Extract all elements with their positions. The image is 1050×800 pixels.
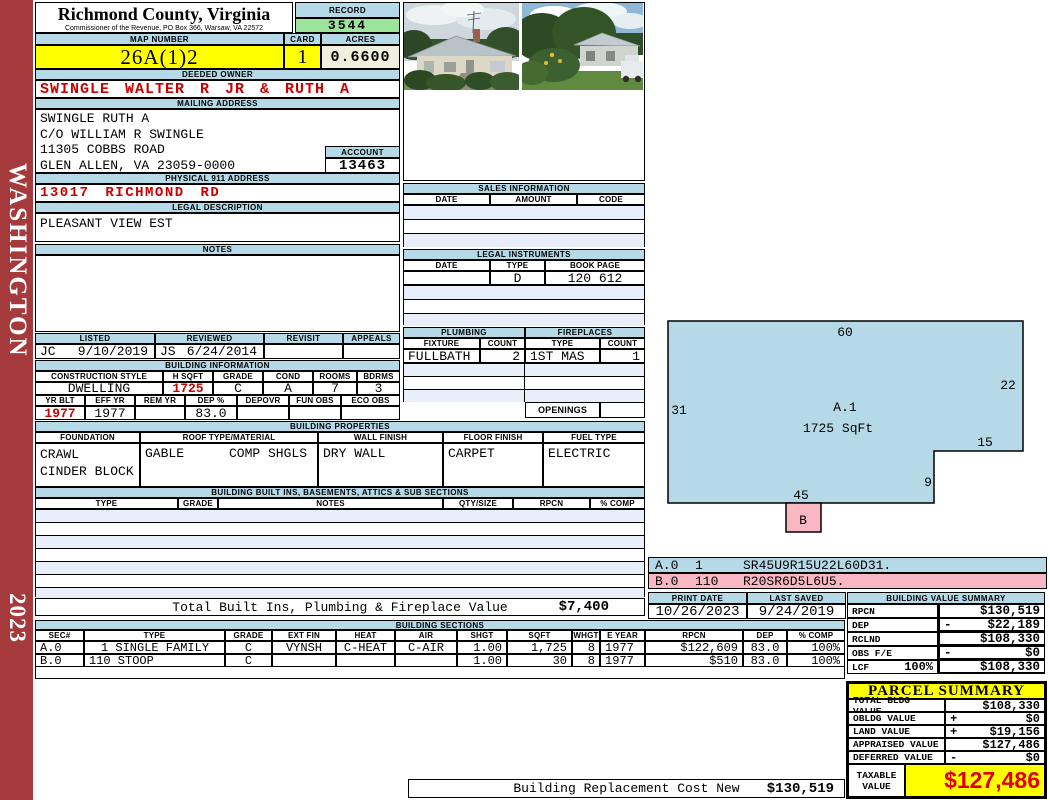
col-funobs: FUN OBS <box>289 395 341 406</box>
col-fuel-type: FUEL TYPE <box>543 432 645 443</box>
plumbing-title: PLUMBING <box>403 327 525 338</box>
col-extfin: EXT FIN <box>272 630 336 641</box>
sketch-b-label: B <box>799 513 807 528</box>
col-bi-grade: GRADE <box>178 498 218 509</box>
section-row-cell: A.0 <box>35 641 84 654</box>
replacement-cost-label: Building Replacement Cost New <box>513 781 739 796</box>
section-row-cell: $122,609 <box>645 641 743 654</box>
sales-information-title: SALES INFORMATION <box>403 183 645 194</box>
bvs-label: OBS F/E <box>852 648 892 659</box>
reviewed-label: REVIEWED <box>155 333 264 344</box>
col-floor-finish: FLOOR FINISH <box>443 432 543 443</box>
col-heat: HEAT <box>336 630 395 641</box>
listed-by: JC <box>40 344 56 359</box>
section-row-cell: VYNSH <box>272 641 336 654</box>
deeded-owner-value: SWINGLE WALTER R JR & RUTH A <box>35 80 400 98</box>
physical-address-value: 13017 RICHMOND RD <box>35 184 400 202</box>
revisit-label: REVISIT <box>264 333 343 344</box>
empty-row <box>36 549 644 562</box>
property-record-card: WASHINGTON 2023 Richmond County, Virgini… <box>0 0 1050 800</box>
wall-finish-value: DRY WALL <box>318 443 443 487</box>
col-inst-type: TYPE <box>490 260 545 271</box>
remyr-value <box>135 406 185 420</box>
legal-description-label: LEGAL DESCRIPTION <box>35 202 400 213</box>
col-bi-qty: QTY/SIZE <box>443 498 513 509</box>
sections-table-footer <box>35 667 845 679</box>
hsqft-value: 1725 <box>163 382 213 395</box>
bvs-amount: $22,189 <box>987 618 1040 632</box>
notes-label: NOTES <box>35 244 400 255</box>
empty-row <box>36 536 644 549</box>
mailing-line: C/O WILLIAM R SWINGLE <box>36 127 399 143</box>
bvs-label: RCLND <box>852 634 881 645</box>
instrument-bookpage-value: 120 612 <box>545 271 645 285</box>
col-bi-rpcn: RPCN <box>513 498 590 509</box>
instrument-type-value: D <box>490 271 545 285</box>
col-effyr: EFF YR <box>85 395 135 406</box>
legal-description-value: PLEASANT VIEW EST <box>35 213 400 242</box>
parcel-sign: + <box>950 712 957 726</box>
section-row-cell: 8 <box>572 654 600 667</box>
col-bi-type: TYPE <box>35 498 178 509</box>
plumbing-divider <box>524 363 525 402</box>
parcel-sign: + <box>950 725 957 739</box>
section-row-cell: 1977 <box>600 641 645 654</box>
parcel-label: TOTAL BLDG VALUE <box>848 699 945 712</box>
bvs-amount: $108,330 <box>980 632 1040 646</box>
taxable-value-label: TAXABLE VALUE <box>848 764 905 797</box>
property-photo-front <box>404 3 519 90</box>
col-whgt: WHGT <box>572 630 600 641</box>
building-value-summary-title: BUILDING VALUE SUMMARY <box>847 592 1045 604</box>
record-value: 3544 <box>295 18 400 33</box>
listed-date: 9/10/2019 <box>78 344 148 359</box>
parcel-amount: $108,330 <box>982 699 1040 713</box>
col-sec-grade: GRADE <box>225 630 272 641</box>
col-bi-notes: NOTES <box>218 498 443 509</box>
dim-step-h: 9 <box>924 475 932 490</box>
col-remyr: REM YR <box>135 395 185 406</box>
built-ins-total-label: Total Built Ins, Plumbing & Fireplace Va… <box>172 600 507 615</box>
empty-row <box>404 300 644 314</box>
parcel-label: DEFERRED VALUE <box>848 751 945 764</box>
section-row-cell: C-HEAT <box>336 641 395 654</box>
notes-box <box>35 255 400 332</box>
section-row-cell: 30 <box>507 654 572 667</box>
bvs-amount: $108,330 <box>980 660 1040 674</box>
roof-value: GABLE COMP SHGLS <box>140 443 318 487</box>
bvs-label: DEP <box>852 620 869 631</box>
col-sec-dep: DEP <box>743 630 787 641</box>
parcel-value: +$0 <box>945 712 1045 725</box>
section-row-cell: 1 SINGLE FAMILY <box>84 641 225 654</box>
section-row-cell: 1.00 <box>457 641 507 654</box>
acres-value: 0.6600 <box>321 45 400 69</box>
col-fixture-count: COUNT <box>480 338 525 349</box>
mailing-address-label: MAILING ADDRESS <box>35 98 400 109</box>
last-saved-value: 9/24/2019 <box>747 604 846 619</box>
bvs-sign: - <box>944 646 952 660</box>
bdrms-value: 3 <box>357 382 400 395</box>
col-sec-type: TYPE <box>84 630 225 641</box>
card-value: 1 <box>284 45 321 69</box>
openings-value <box>600 402 645 418</box>
account-value: 13463 <box>325 158 400 173</box>
depovr-value <box>237 406 289 420</box>
building-sketch: 60 22 31 A.1 1725 SqFt 15 9 45 B <box>648 298 1048 556</box>
yrblt-value: 1977 <box>35 406 85 420</box>
col-fireplace-count: COUNT <box>600 338 645 349</box>
revisit-value <box>264 344 343 359</box>
replacement-cost-value: $130,519 <box>767 781 834 797</box>
effyr-value: 1977 <box>85 406 135 420</box>
empty-row <box>404 206 644 220</box>
reviewed-by: JS <box>160 344 176 359</box>
col-wall-finish: WALL FINISH <box>318 432 443 443</box>
rooms-value: 7 <box>313 382 357 395</box>
bvs-amount: $0 <box>1025 646 1040 660</box>
section-row-cell: 100% <box>787 641 845 654</box>
parcel-amount: $19,156 <box>990 725 1040 739</box>
empty-row <box>404 234 644 247</box>
fireplaces-title: FIREPLACES <box>525 327 645 338</box>
section-row-cell: 1.00 <box>457 654 507 667</box>
code-num: 110 <box>695 574 743 589</box>
col-foundation: FOUNDATION <box>35 432 140 443</box>
col-sec-comp: % COMP <box>787 630 845 641</box>
bvs-label: LCF <box>852 662 869 673</box>
fixture-value: FULLBATH <box>403 349 480 363</box>
section-row-cell: 1977 <box>600 654 645 667</box>
map-number-label: MAP NUMBER <box>35 33 284 45</box>
code-vector: R20SR6D5L6U5. <box>743 574 844 589</box>
col-inst-book: BOOK PAGE <box>545 260 645 271</box>
empty-row <box>404 286 644 300</box>
col-eyear: E YEAR <box>600 630 645 641</box>
account-label: ACCOUNT <box>325 146 400 158</box>
openings-label: OPENINGS <box>525 402 600 418</box>
parcel-sign: - <box>950 751 957 765</box>
built-ins-total-value: $7,400 <box>559 599 609 615</box>
parcel-label: LAND VALUE <box>848 725 945 738</box>
bvs-value-obs: -$0 <box>938 646 1045 660</box>
grade-value: C <box>213 382 263 395</box>
fuel-type-value: ELECTRIC <box>543 443 645 487</box>
sales-empty-rows <box>403 205 645 247</box>
parcel-value: $127,486 <box>945 738 1045 751</box>
col-roof: ROOF TYPE/MATERIAL <box>140 432 318 443</box>
empty-row <box>36 575 644 588</box>
tax-year-label: 2023 <box>4 583 30 653</box>
bvs-extra: 100% <box>904 660 933 674</box>
section-row-cell: C <box>225 641 272 654</box>
fireplace-count-value: 1 <box>600 349 645 363</box>
section-row-cell <box>336 654 395 667</box>
record-label: RECORD <box>295 2 400 18</box>
parcel-value: +$19,156 <box>945 725 1045 738</box>
ecoobs-value <box>341 406 400 420</box>
col-fixture: FIXTURE <box>403 338 480 349</box>
deeded-owner-label: DEEDED OWNER <box>35 69 400 80</box>
bvs-label-rclnd: RCLND <box>847 632 938 646</box>
col-air: AIR <box>395 630 457 641</box>
built-ins-total-row: Total Built Ins, Plumbing & Fireplace Va… <box>35 598 645 616</box>
bvs-label: RPCN <box>852 606 875 617</box>
col-fireplace-type: TYPE <box>525 338 600 349</box>
bvs-value-dep: -$22,189 <box>938 618 1045 632</box>
sketch-area-label: A.1 <box>833 400 857 415</box>
floor-finish-value: CARPET <box>443 443 543 487</box>
empty-row <box>404 220 644 234</box>
section-row-cell: 83.0 <box>743 654 787 667</box>
bvs-value-lcf: $108,330 <box>938 660 1045 674</box>
dep-pct-value: 83.0 <box>185 406 237 420</box>
legal-instruments-title: LEGAL INSTRUMENTS <box>403 249 645 260</box>
appeals-label: APPEALS <box>343 333 400 344</box>
building-sections-title: BUILDING SECTIONS <box>35 620 845 630</box>
building-properties-title: BUILDING PROPERTIES <box>35 421 645 432</box>
section-row-cell: 100% <box>787 654 845 667</box>
bvs-label-obs: OBS F/E <box>847 646 938 660</box>
dim-top: 60 <box>837 325 853 340</box>
taxable-value-amount: $127,486 <box>905 764 1045 797</box>
parcel-value: $108,330 <box>945 699 1045 712</box>
sketch-code-row-b: B.0 110 R20SR6D5L6U5. <box>648 573 1047 589</box>
col-sale-date: DATE <box>403 194 490 205</box>
col-sec-rpcn: RPCN <box>645 630 743 641</box>
dim-left: 31 <box>671 403 687 418</box>
code-sec: B.0 <box>649 574 695 589</box>
section-row-cell: 83.0 <box>743 641 787 654</box>
col-sale-code: CODE <box>577 194 645 205</box>
section-row-cell: C <box>225 654 272 667</box>
sketch-code-row-a: A.0 1 SR45U9R15U22L60D31. <box>648 557 1047 573</box>
mailing-line: SWINGLE RUTH A <box>36 110 399 127</box>
dim-bottom: 45 <box>793 488 809 503</box>
last-saved-label: LAST SAVED <box>747 592 846 604</box>
section-row-cell: $510 <box>645 654 743 667</box>
county-header-box: Richmond County, Virginia Commissioner o… <box>35 2 293 33</box>
code-sec: A.0 <box>649 558 695 573</box>
col-depovr: DEPOVR <box>237 395 289 406</box>
foundation-value: CRAWL CINDER BLOCK <box>35 443 140 487</box>
col-ecoobs: ECO OBS <box>341 395 400 406</box>
bvs-label-dep: DEP <box>847 618 938 632</box>
roof-type: GABLE <box>145 446 184 461</box>
col-yrblt: YR BLT <box>35 395 85 406</box>
built-ins-empty-rows <box>35 509 645 597</box>
section-row-cell <box>395 654 457 667</box>
acres-label: ACRES <box>321 33 400 45</box>
col-shgt: SHGT <box>457 630 507 641</box>
reviewed-value: JS 6/24/2014 <box>155 344 264 359</box>
col-sale-amount: AMOUNT <box>490 194 577 205</box>
section-row-cell: 110 STOOP <box>84 654 225 667</box>
fireplace-type-value: 1ST MAS <box>525 349 600 363</box>
parcel-label: APPRAISED VALUE <box>848 738 945 751</box>
empty-row <box>36 562 644 575</box>
code-num: 1 <box>695 558 743 573</box>
card-label: CARD <box>284 33 321 45</box>
roof-material: COMP SHGLS <box>229 446 307 461</box>
district-label: WASHINGTON <box>3 95 31 425</box>
built-ins-title: BUILDING BUILT INS, BASEMENTS, ATTICS & … <box>35 487 645 498</box>
appeals-value <box>343 344 400 359</box>
commissioner-line: Commissioner of the Revenue, PO Box 366,… <box>36 25 292 32</box>
parcel-amount: $0 <box>1026 712 1040 726</box>
bvs-label-rpcn: RPCN <box>847 604 938 618</box>
col-sec: SEC# <box>35 630 84 641</box>
dim-right: 22 <box>1000 378 1016 393</box>
section-row-cell: 1,725 <box>507 641 572 654</box>
print-date-value: 10/26/2023 <box>648 604 747 619</box>
bvs-label-lcf: LCF100% <box>847 660 938 674</box>
section-row-cell: C-AIR <box>395 641 457 654</box>
instrument-date-value <box>403 271 490 285</box>
physical-address-label: PHYSICAL 911 ADDRESS <box>35 173 400 184</box>
construction-style-value: DWELLING <box>35 382 163 395</box>
parcel-label: OBLDG VALUE <box>848 712 945 725</box>
listed-label: LISTED <box>35 333 155 344</box>
empty-row <box>404 314 644 326</box>
cond-value: A <box>263 382 313 395</box>
empty-row <box>36 510 644 523</box>
col-sqft: SQFT <box>507 630 572 641</box>
empty-row <box>36 523 644 536</box>
reviewed-date: 6/24/2014 <box>187 344 257 359</box>
col-dep-pct: DEP % <box>185 395 237 406</box>
code-vector: SR45U9R15U22L60D31. <box>743 558 891 573</box>
instruments-empty-rows <box>403 285 645 325</box>
print-date-label: PRINT DATE <box>648 592 747 604</box>
bvs-value-rpcn: $130,519 <box>938 604 1045 618</box>
listed-value: JC 9/10/2019 <box>35 344 155 359</box>
county-name: Richmond County, Virginia <box>36 4 292 25</box>
parcel-value: -$0 <box>945 751 1045 764</box>
bvs-value-rclnd: $108,330 <box>938 632 1045 646</box>
fixture-count-value: 2 <box>480 349 525 363</box>
map-number-value: 26A(1)2 <box>35 45 284 69</box>
dim-step-w: 15 <box>977 435 993 450</box>
property-photo-side <box>522 3 643 90</box>
section-row-cell: B.0 <box>35 654 84 667</box>
building-information-title: BUILDING INFORMATION <box>35 360 400 371</box>
parcel-amount: $127,486 <box>982 738 1040 752</box>
bvs-amount: $130,519 <box>980 604 1040 618</box>
col-inst-date: DATE <box>403 260 490 271</box>
col-bi-comp: % COMP <box>590 498 645 509</box>
section-row-cell: 8 <box>572 641 600 654</box>
sketch-area-sqft: 1725 SqFt <box>803 421 873 436</box>
parcel-amount: $0 <box>1026 751 1040 765</box>
replacement-cost-row: Building Replacement Cost New $130,519 <box>408 779 845 798</box>
bvs-sign: - <box>944 618 952 632</box>
section-row-cell <box>272 654 336 667</box>
funobs-value <box>289 406 341 420</box>
